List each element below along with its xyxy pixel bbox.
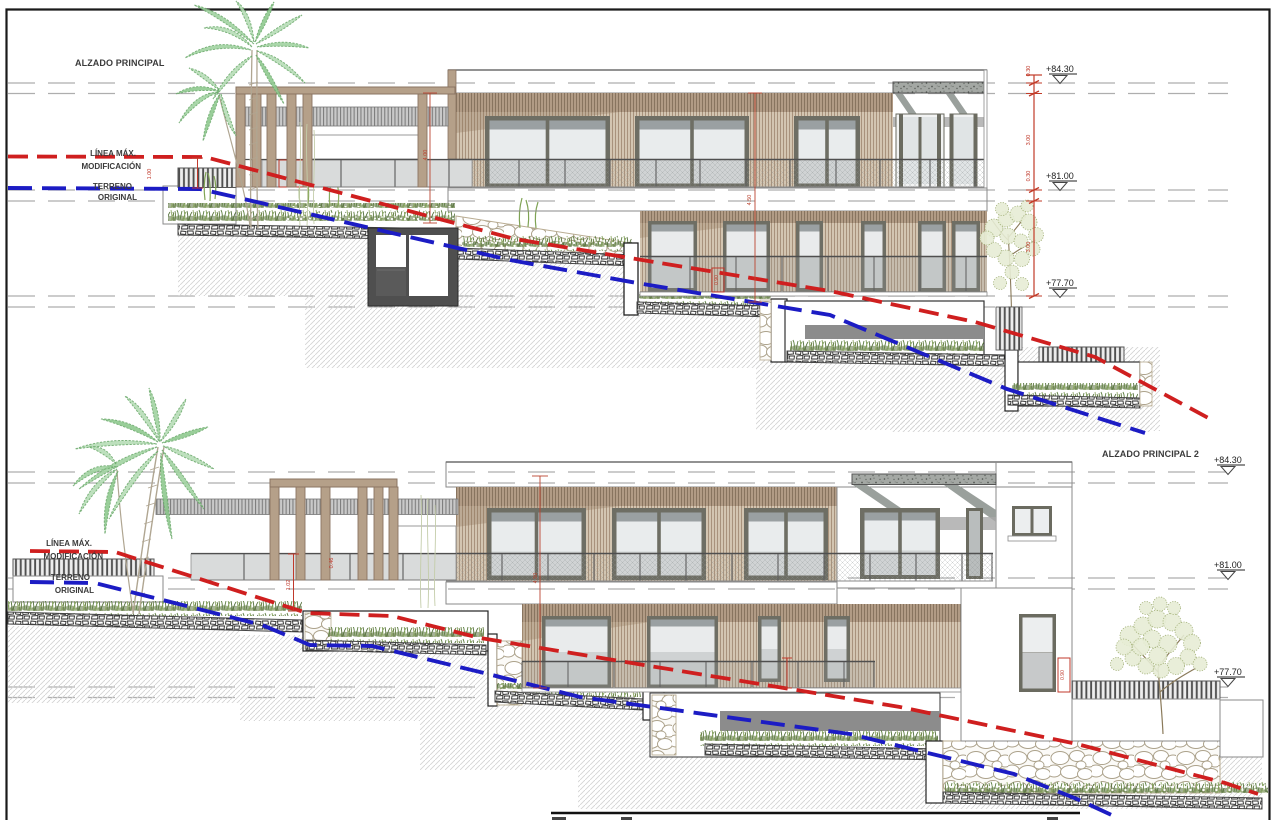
svg-text:ORIGINAL: ORIGINAL [98,193,137,202]
svg-text:3.00: 3.00 [1026,242,1032,253]
svg-text:LÍNEA MÁX.: LÍNEA MÁX. [46,539,92,548]
svg-text:3.00: 3.00 [1026,135,1032,146]
svg-text:1.00: 1.00 [147,169,153,180]
svg-text:0.90: 0.90 [714,275,720,285]
svg-text:+84.30: +84.30 [1046,64,1074,74]
svg-text:1.02: 1.02 [286,580,292,591]
svg-text:4.50: 4.50 [533,573,539,584]
svg-text:0.46: 0.46 [329,558,335,569]
svg-text:+77.70: +77.70 [1046,278,1074,288]
svg-text:ALZADO PRINCIPAL 2: ALZADO PRINCIPAL 2 [1102,449,1199,459]
svg-text:0.30: 0.30 [1026,66,1032,77]
svg-text:LÍNEA MÁX.: LÍNEA MÁX. [90,149,136,158]
svg-text:0.90: 0.90 [1060,670,1066,680]
svg-text:MODIFICACIÓN: MODIFICACIÓN [43,552,103,561]
svg-text:+81.00: +81.00 [1214,560,1242,570]
svg-text:4.00: 4.00 [423,150,429,161]
svg-text:0.30: 0.30 [1026,171,1032,182]
svg-text:MODIFICACIÓN: MODIFICACIÓN [81,162,141,171]
svg-text:ORIGINAL: ORIGINAL [55,586,94,595]
svg-text:+84.30: +84.30 [1214,455,1242,465]
svg-text:ALZADO PRINCIPAL: ALZADO PRINCIPAL [75,58,165,68]
svg-text:+77.70: +77.70 [1214,667,1242,677]
svg-text:TERRENO: TERRENO [93,182,132,191]
svg-text:4.50: 4.50 [747,195,753,206]
svg-text:TERRENO: TERRENO [51,573,90,582]
svg-text:+81.00: +81.00 [1046,171,1074,181]
